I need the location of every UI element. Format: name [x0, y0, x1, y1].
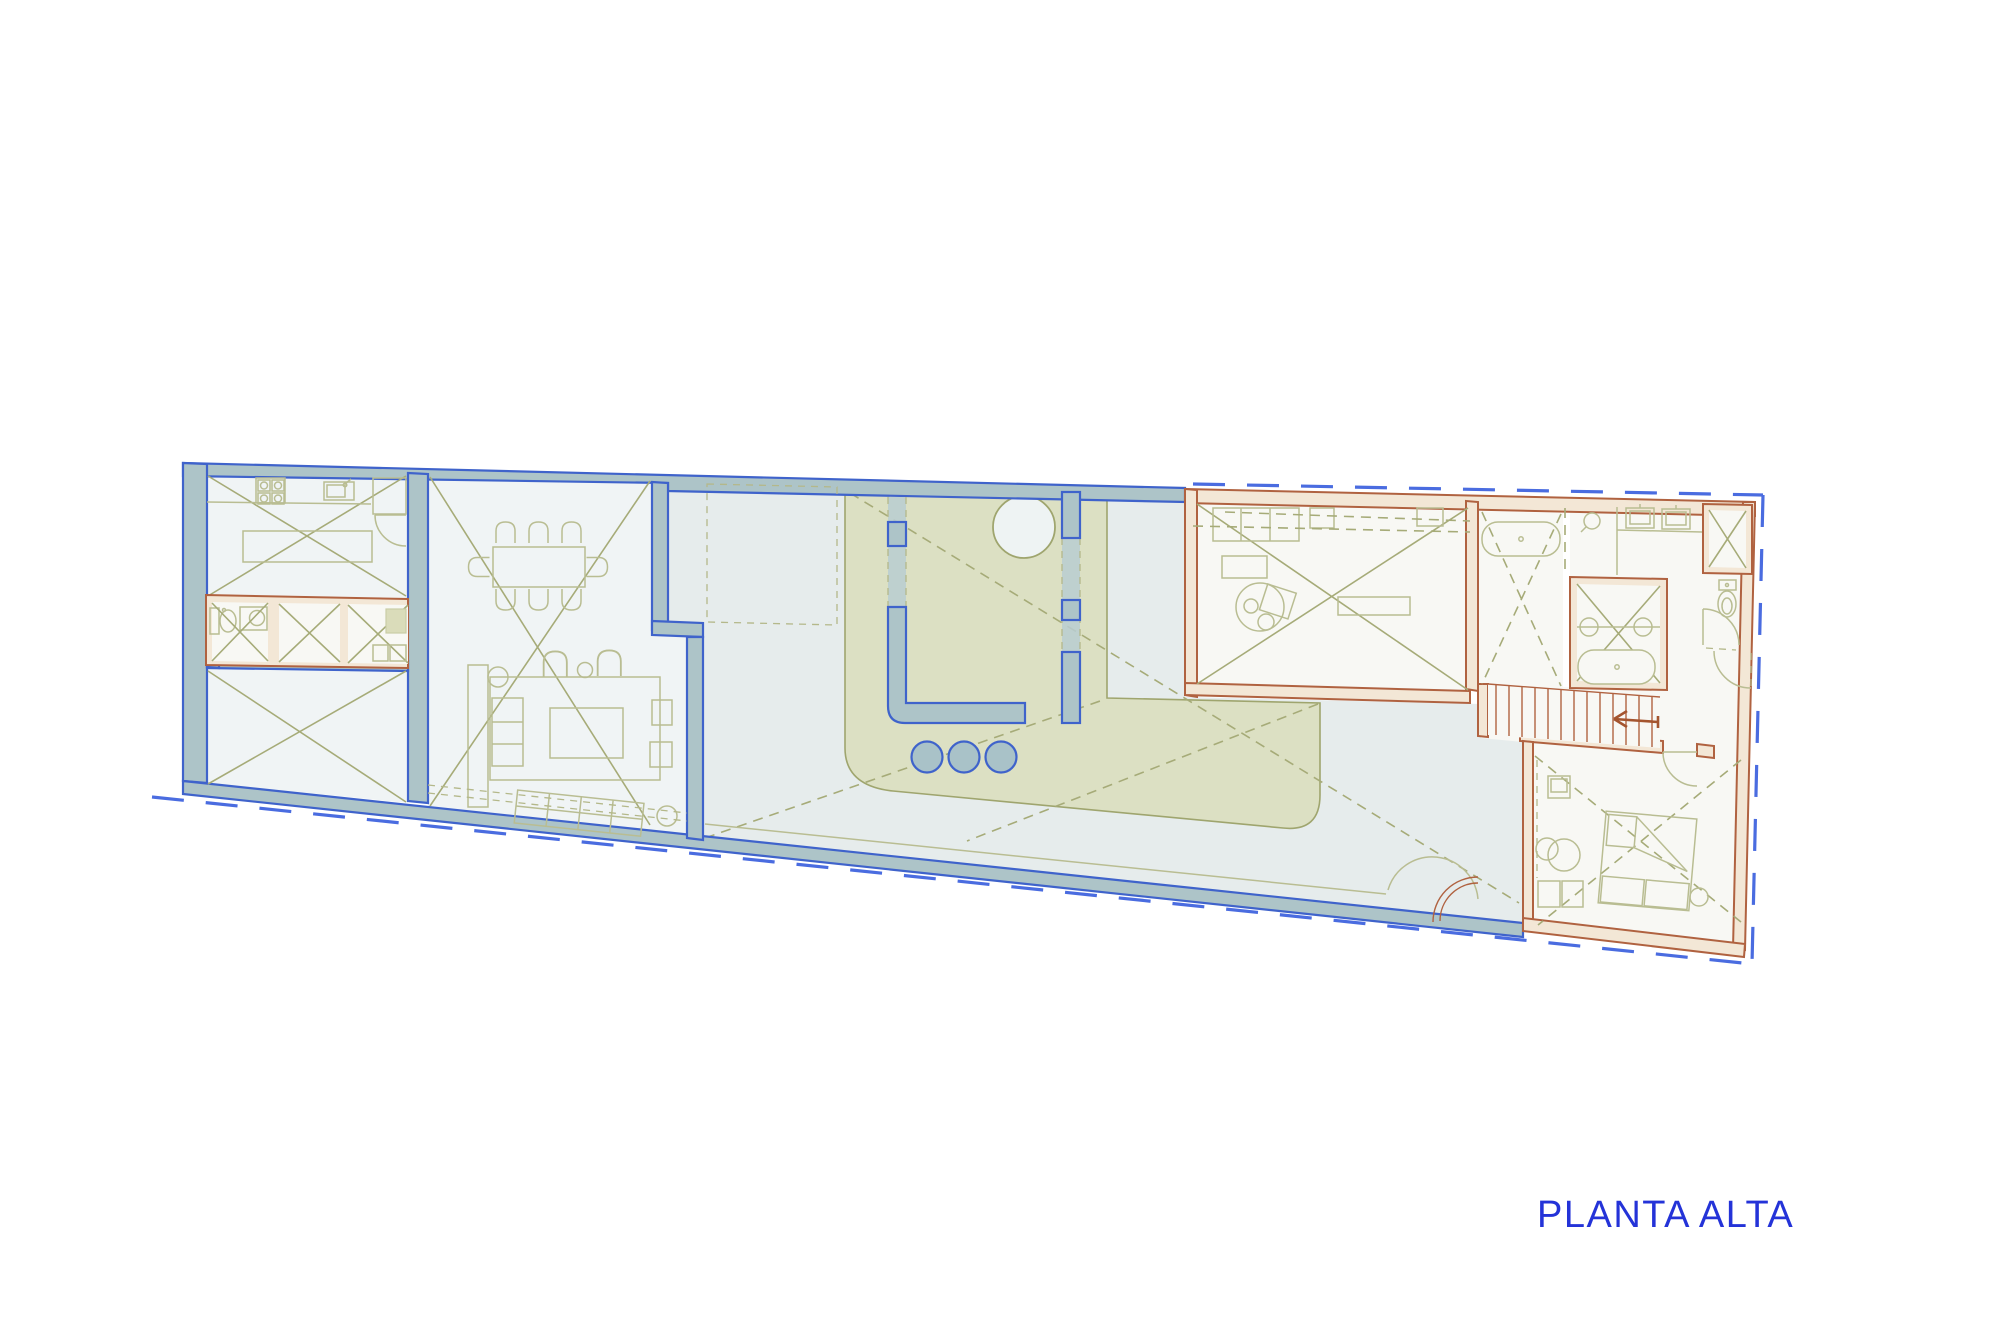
- kitchen-dining-wall: [408, 473, 428, 803]
- garden-circle-feature: [993, 496, 1055, 558]
- pergola-strip-right: [1062, 538, 1080, 653]
- left-wall: [183, 463, 207, 783]
- stepping-circle-3: [986, 742, 1017, 773]
- pergola-strip-left: [888, 497, 906, 607]
- floor-plan-page: PLANTA ALTA: [0, 0, 2000, 1332]
- page-title: PLANTA ALTA: [1537, 1194, 1794, 1237]
- dining-living-floor: [428, 476, 687, 836]
- master-bathtub-icon: [1578, 650, 1655, 684]
- bedroom-left-wall: [1523, 741, 1533, 923]
- stair-side-wall: [1478, 684, 1488, 737]
- stepping-circle-2: [949, 742, 980, 773]
- floor-plan-drawing: [0, 0, 2000, 1332]
- master-shower-room: [1570, 577, 1667, 690]
- step-wall-mid: [652, 621, 703, 637]
- bathtub-icon: [1482, 522, 1560, 556]
- wall-segment-right-top: [1062, 492, 1080, 538]
- stepping-circle-1: [912, 742, 943, 773]
- closet: [1703, 504, 1752, 574]
- service-band: [206, 595, 408, 668]
- step-wall-lower: [687, 637, 703, 840]
- study-left-wall: [1185, 489, 1197, 697]
- wall-segment-right-bottom: [1062, 652, 1080, 723]
- study-bath-divider: [1466, 501, 1478, 691]
- column-left: [888, 522, 906, 546]
- step-wall-upper: [652, 482, 668, 630]
- washer-icon: [386, 609, 406, 633]
- column-right: [1062, 600, 1080, 620]
